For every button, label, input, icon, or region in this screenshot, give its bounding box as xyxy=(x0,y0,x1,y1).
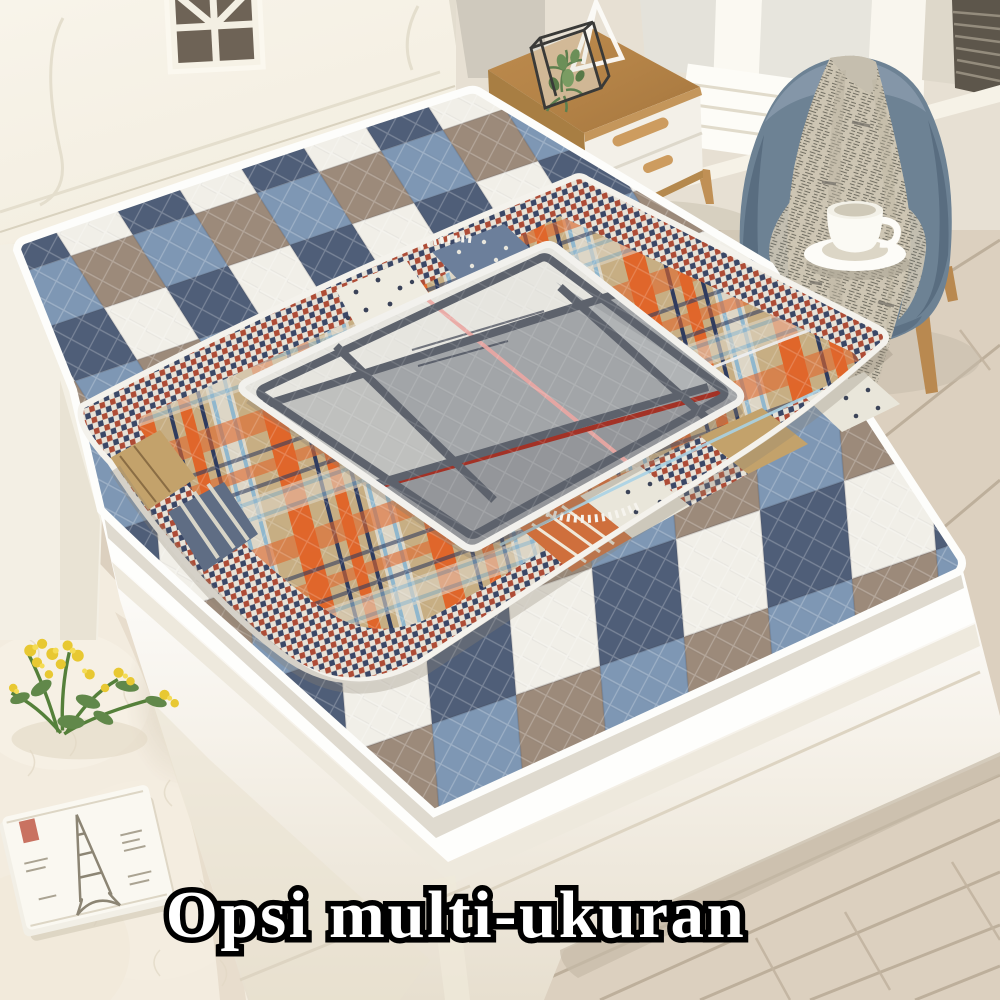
svg-text:Opsi multi-ukuran: Opsi multi-ukuran xyxy=(166,878,747,952)
